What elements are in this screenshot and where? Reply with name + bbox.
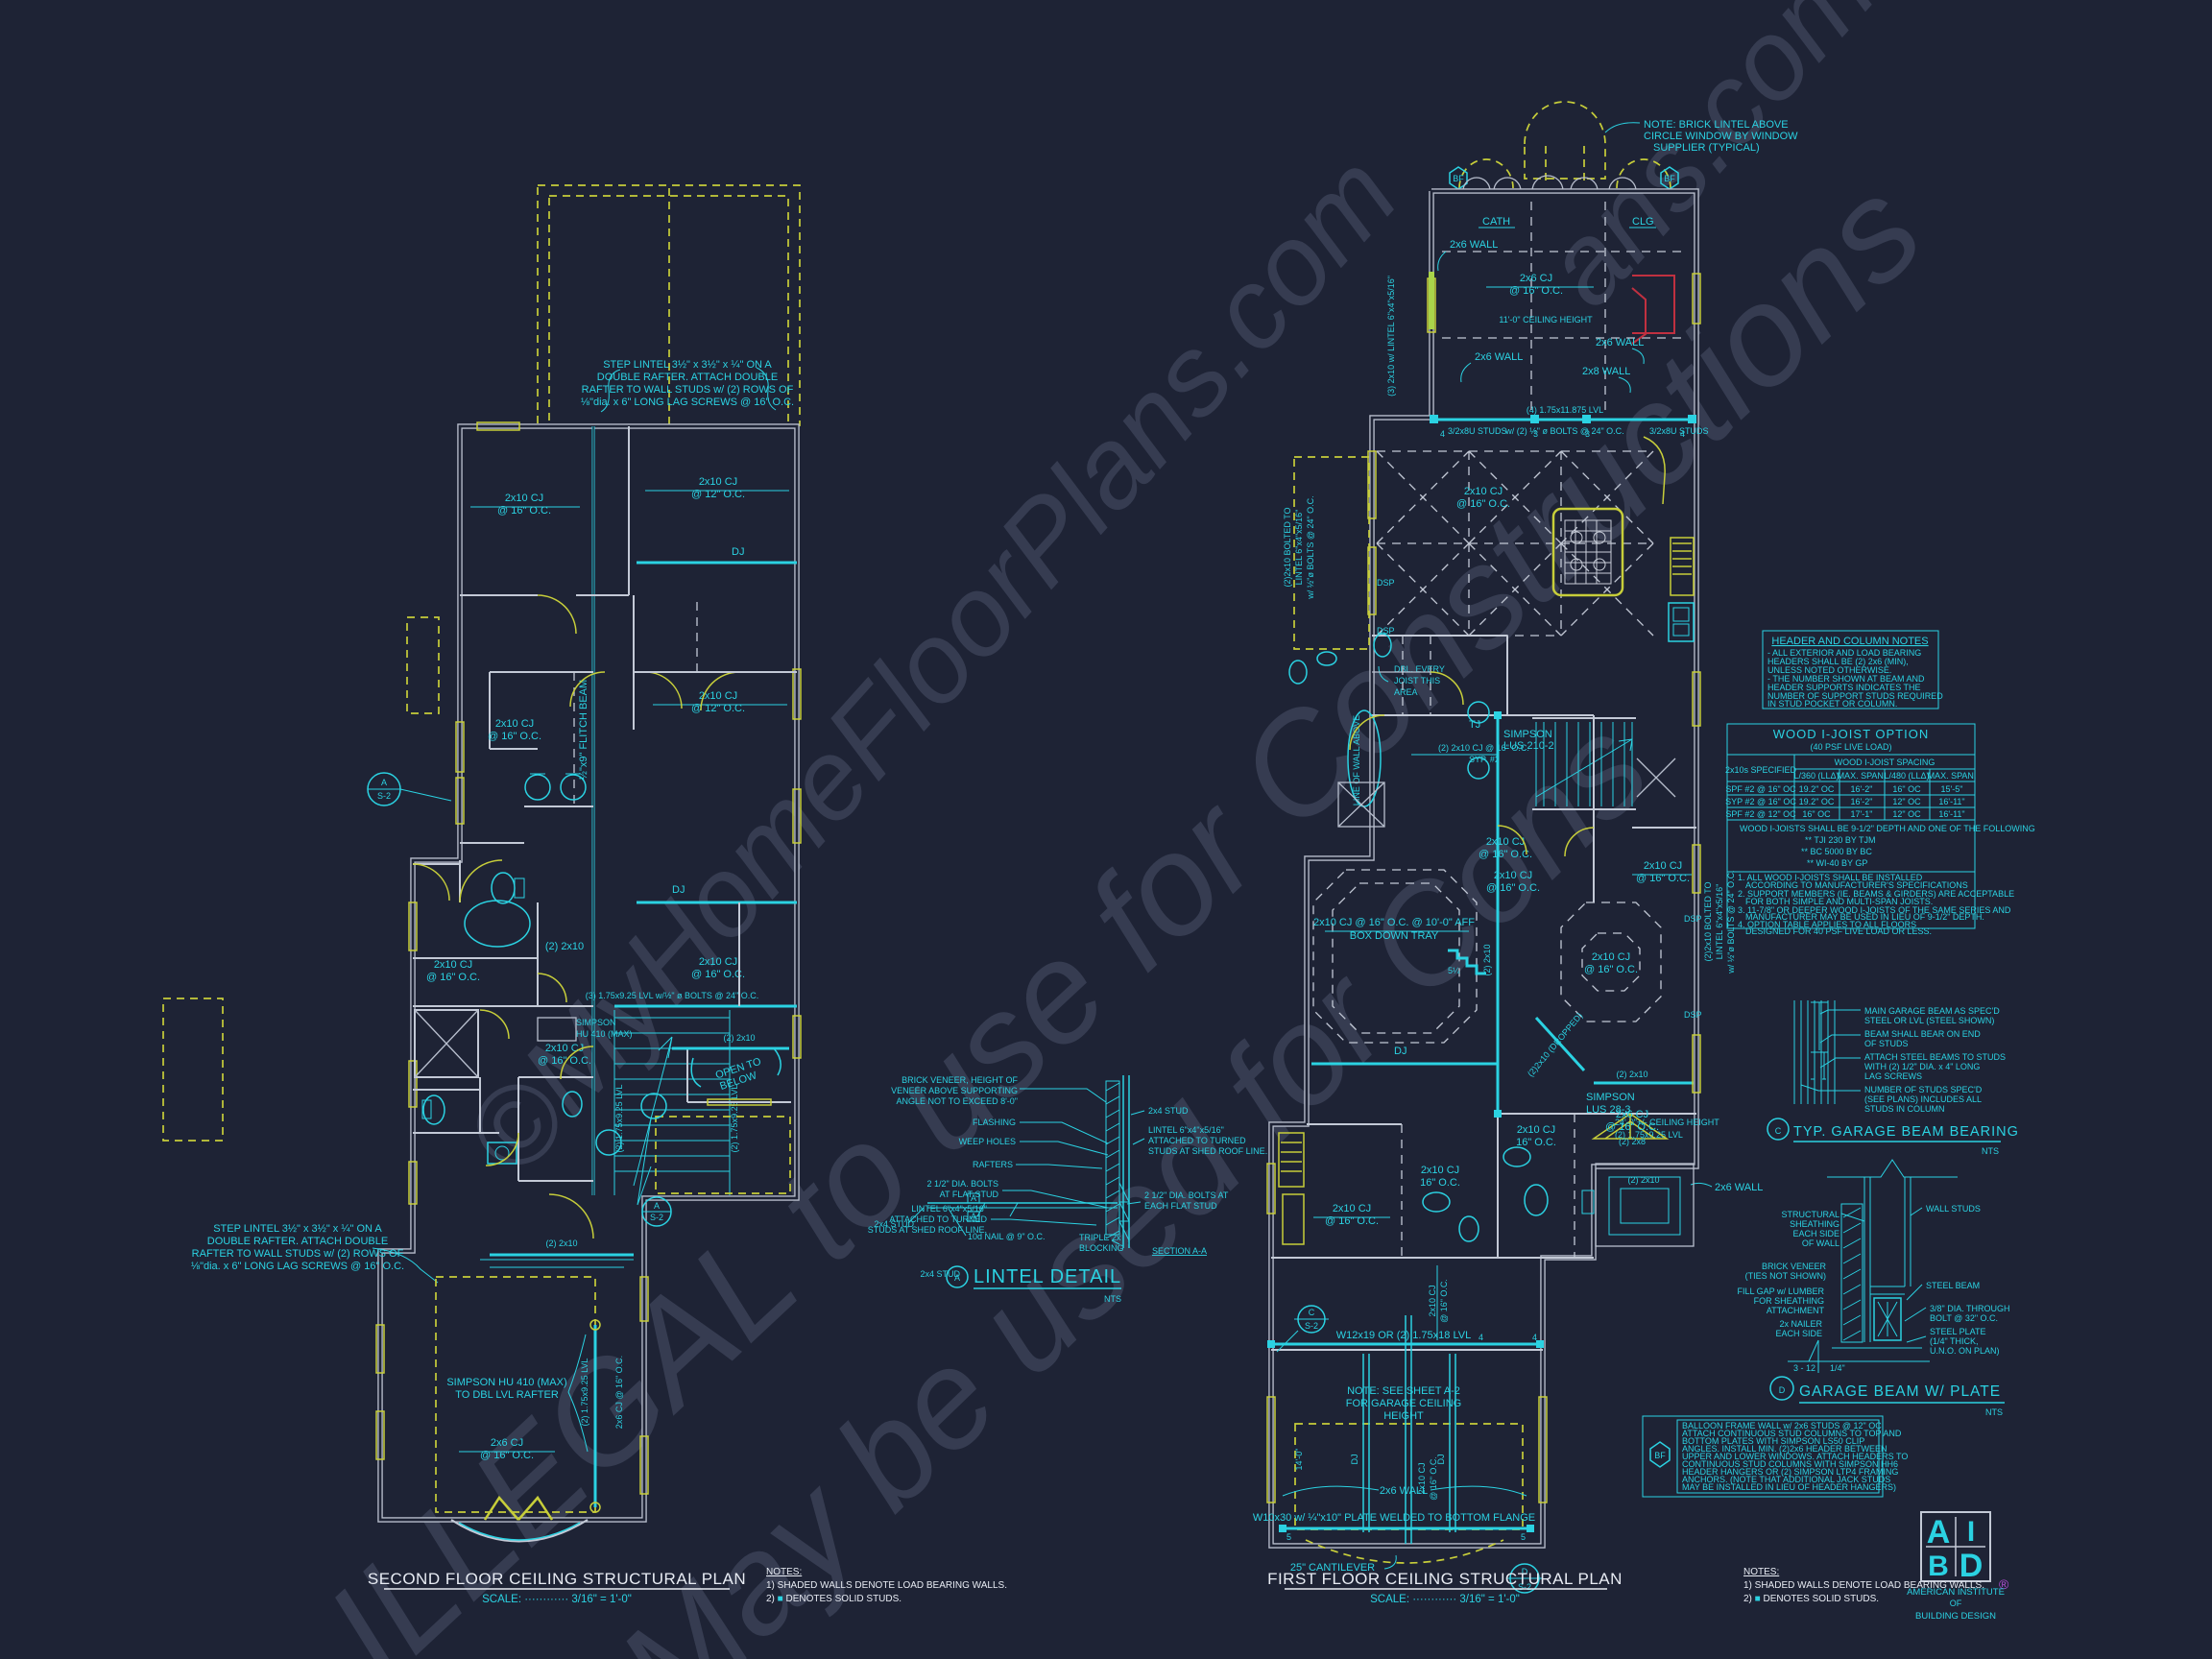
svg-text:2x10 CJ: 2x10 CJ [434,959,472,971]
svg-text:2) ■ DENOTES SOLID STUDS.: 2) ■ DENOTES SOLID STUDS. [1743,1594,1879,1604]
svg-text:16'-11": 16'-11" [1938,797,1964,806]
svg-text:@ 16" O.C.: @ 16" O.C. [1439,1279,1449,1323]
svg-text:WOOD I-JOIST SPACING: WOOD I-JOIST SPACING [1835,757,1935,767]
svg-text:HEIGHT: HEIGHT [1383,1410,1424,1422]
svg-text:4: 4 [1479,1333,1483,1342]
svg-text:GARAGE BEAM W/ PLATE: GARAGE BEAM W/ PLATE [1799,1383,2001,1400]
svg-text:L/360 (LLΔ): L/360 (LLΔ) [1793,771,1839,781]
svg-text:(2) 1.75x9.25 LVL: (2) 1.75x9.25 LVL [580,1358,589,1427]
svg-text:SUPPLIER (TYPICAL): SUPPLIER (TYPICAL) [1653,142,1760,154]
svg-text:11'-0" CEILING HEIGHT: 11'-0" CEILING HEIGHT [1499,315,1593,325]
svg-text:2x10 CJ: 2x10 CJ [1464,486,1503,497]
svg-text:BEAM SHALL BEAR ON END: BEAM SHALL BEAR ON END [1864,1029,1981,1039]
svg-text:NTS: NTS [1104,1294,1121,1304]
svg-text:FLASHING: FLASHING [973,1118,1016,1127]
svg-text:RAFTERS: RAFTERS [973,1160,1013,1169]
svg-text:NTS: NTS [1982,1146,1999,1156]
svg-text:2x10 CJ: 2x10 CJ [1333,1203,1371,1214]
svg-text:2x10 CJ: 2x10 CJ [1428,1285,1437,1316]
svg-text:4: 4 [1680,429,1685,439]
svg-text:W10x30 w/ ¼"x10" PLATE WELDED: W10x30 w/ ¼"x10" PLATE WELDED TO BOTTOM … [1253,1512,1535,1524]
svg-text:10d NAIL @ 9" O.C.: 10d NAIL @ 9" O.C. [968,1232,1046,1241]
svg-text:A: A [971,1212,976,1221]
svg-text:⅛"dia. x 6" LONG LAG SCREWS @: ⅛"dia. x 6" LONG LAG SCREWS @ 16" O.C. [581,397,794,408]
svg-text:(3) 2x10 w/ LINTEL 6"x4"x5/16": (3) 2x10 w/ LINTEL 6"x4"x5/16" [1386,276,1396,397]
svg-text:2x10 CJ: 2x10 CJ [1421,1165,1459,1176]
svg-text:LINTEL 6"x4"x5/16": LINTEL 6"x4"x5/16" [1715,884,1724,960]
svg-text:ATTACH STEEL BEAMS TO STUDS: ATTACH STEEL BEAMS TO STUDS [1864,1052,2006,1062]
svg-text:16'-2": 16'-2" [1851,797,1873,806]
svg-text:L/480 (LLΔ): L/480 (LLΔ) [1884,771,1929,781]
svg-text:NUMBER OF STUDS SPEC'D: NUMBER OF STUDS SPEC'D [1864,1085,1983,1094]
svg-text:15'-5": 15'-5" [1941,784,1963,794]
svg-text:2x10 CJ @ 16" O.C. @ 10'-0" AF: 2x10 CJ @ 16" O.C. @ 10'-0" AFF [1313,917,1475,928]
svg-text:SHEATHING: SHEATHING [1790,1219,1839,1229]
svg-text:3/2x8U STUDS: 3/2x8U STUDS [1448,426,1507,436]
svg-text:TJ: TJ [1469,719,1480,731]
svg-text:NTS: NTS [1985,1407,2003,1417]
svg-text:3/8" DIA. THROUGH: 3/8" DIA. THROUGH [1930,1304,2010,1313]
svg-text:STUDS IN COLUMN: STUDS IN COLUMN [1864,1104,1945,1114]
svg-text:2x6 CJ: 2x6 CJ [1616,1109,1648,1120]
svg-text:2x6 WALL: 2x6 WALL [1380,1485,1428,1497]
svg-text:2x10 CJ: 2x10 CJ [1517,1124,1555,1136]
svg-text:2x10 CJ: 2x10 CJ [699,690,737,702]
svg-text:(2)2x10 BOLTED TO: (2)2x10 BOLTED TO [1703,881,1713,961]
svg-text:2x6 WALL: 2x6 WALL [1596,337,1644,349]
svg-text:2x10 CJ: 2x10 CJ [505,493,543,504]
svg-text:C: C [1775,1126,1782,1136]
svg-text:½"x9" FLITCH BEAM: ½"x9" FLITCH BEAM [578,680,589,780]
svg-text:NOTES:: NOTES: [1743,1567,1779,1577]
svg-text:SPF #2 @ 16" OC: SPF #2 @ 16" OC [1725,784,1796,794]
svg-text:2x6 CJ @ 16" O.C.: 2x6 CJ @ 16" O.C. [614,1356,624,1429]
svg-text:EACH FLAT STUD: EACH FLAT STUD [1144,1201,1217,1211]
svg-text:1) SHADED WALLS DENOTE LOAD BE: 1) SHADED WALLS DENOTE LOAD BEARING WALL… [1743,1580,1984,1591]
svg-text:(SEE PLANS) INCLUDES ALL: (SEE PLANS) INCLUDES ALL [1864,1094,1982,1104]
svg-text:2x4 STUD: 2x4 STUD [874,1219,914,1229]
svg-text:4: 4 [1532,1333,1537,1342]
svg-text:5¼: 5¼ [1448,966,1460,975]
svg-text:2x NAILER: 2x NAILER [1779,1319,1822,1329]
svg-text:2x6 CJ: 2x6 CJ [1520,273,1552,284]
svg-text:@ 16" O.C.: @ 16" O.C. [1479,849,1532,860]
svg-text:@ 16" O.C.: @ 16" O.C. [426,972,480,983]
svg-text:(2) 2x10: (2) 2x10 [545,941,584,952]
svg-text:STEEL BEAM: STEEL BEAM [1926,1281,1980,1290]
svg-text:A: A [971,1193,976,1203]
svg-text:2x6 WALL: 2x6 WALL [1450,239,1498,251]
svg-text:2x6 WALL: 2x6 WALL [1475,351,1523,363]
svg-text:2x10s SPECIFIED: 2x10s SPECIFIED [1725,765,1797,775]
svg-text:FILL GAP w/ LUMBER: FILL GAP w/ LUMBER [1737,1286,1824,1296]
svg-text:TYP. GARAGE BEAM BEARING: TYP. GARAGE BEAM BEARING [1793,1124,2019,1140]
svg-text:(2) 2x8: (2) 2x8 [1619,1137,1646,1146]
svg-text:16" OC: 16" OC [1892,784,1921,794]
svg-text:(2)2x10 BOLTED TO: (2)2x10 BOLTED TO [1283,507,1292,587]
svg-text:RAFTER TO WALL STUDS w/ (2) RO: RAFTER TO WALL STUDS w/ (2) ROWS OF [192,1248,404,1260]
svg-text:LINTEL 6"x4"x5/16": LINTEL 6"x4"x5/16" [1148,1125,1224,1135]
svg-text:ATTACHMENT: ATTACHMENT [1767,1306,1825,1315]
svg-text:@ 16" O.C.: @ 16" O.C. [691,969,745,980]
svg-text:SECOND FLOOR CEILING STRUCTURA: SECOND FLOOR CEILING STRUCTURAL PLAN [368,1570,746,1588]
svg-text:WITH (2) 1/2" DIA. x 4" LONG: WITH (2) 1/2" DIA. x 4" LONG [1864,1062,1980,1071]
svg-text:S-2: S-2 [1305,1321,1318,1331]
svg-text:SCALE: ············ 3/16" =: SCALE: ············ 3/16" = 1'-0" [1370,1594,1520,1605]
svg-text:2) ■ DENOTES SOLID STUDS.: 2) ■ DENOTES SOLID STUDS. [766,1594,902,1604]
svg-text:WOOD I-JOISTS SHALL BE 9-1/2": WOOD I-JOISTS SHALL BE 9-1/2" DEPTH AND … [1740,824,2035,833]
svg-text:CIRCLE WINDOW BY WINDOW: CIRCLE WINDOW BY WINDOW [1644,131,1798,142]
svg-text:CLG: CLG [1632,216,1654,228]
svg-text:2x10 CJ: 2x10 CJ [1592,951,1630,963]
svg-text:SIMPSON: SIMPSON [576,1018,616,1027]
svg-text:ATTACHED TO TURNED: ATTACHED TO TURNED [1148,1136,1246,1145]
svg-text:BOLT @ 32" O.C.: BOLT @ 32" O.C. [1930,1313,1998,1323]
svg-text:FOR GARAGE CEILING: FOR GARAGE CEILING [1346,1398,1461,1409]
svg-text:FIRST FLOOR CEILING STRUCTURAL: FIRST FLOOR CEILING STRUCTURAL PLAN [1267,1570,1623,1588]
svg-text:w/ ½"ø BOLTS @ 24" O.C.: w/ ½"ø BOLTS @ 24" O.C. [1306,495,1315,599]
svg-text:DJ: DJ [1350,1455,1359,1465]
svg-text:1/4": 1/4" [1830,1363,1845,1373]
svg-text:I: I [1967,1516,1975,1548]
svg-text:DOUBLE RAFTER. ATTACH DOUBLE: DOUBLE RAFTER. ATTACH DOUBLE [207,1236,388,1247]
svg-text:AT FLAT STUD: AT FLAT STUD [940,1190,999,1199]
svg-text:MAX. SPAN.: MAX. SPAN. [1928,771,1977,781]
svg-text:SIMPSON HU 410 (MAX): SIMPSON HU 410 (MAX) [446,1377,566,1388]
svg-text:3/2x8U STUDS: 3/2x8U STUDS [1649,426,1709,436]
svg-text:(2) 2x10: (2) 2x10 [723,1033,755,1043]
svg-text:3 - 12: 3 - 12 [1793,1363,1815,1373]
svg-text:NOTE: BRICK LINTEL ABOVE: NOTE: BRICK LINTEL ABOVE [1644,119,1789,131]
svg-text:SCALE: ············ 3/16" =: SCALE: ············ 3/16" = 1'-0" [482,1594,632,1605]
svg-text:2x10 CJ: 2x10 CJ [1494,870,1532,881]
svg-text:(1/4" THICK,: (1/4" THICK, [1930,1336,1979,1346]
svg-text:@ 16" O.C.: @ 16" O.C. [1456,498,1510,510]
svg-text:STEP LINTEL 3½" x 3½" x ¼" ON: STEP LINTEL 3½" x 3½" x ¼" ON A [213,1223,382,1235]
svg-text:BRICK VENEER: BRICK VENEER [1762,1262,1827,1271]
svg-text:(TIES NOT SHOWN): (TIES NOT SHOWN) [1745,1271,1826,1281]
svg-text:@ 16" O.C.: @ 16" O.C. [1486,882,1540,894]
svg-text:SIMPSON: SIMPSON [1503,729,1552,740]
svg-text:LINTEL DETAIL: LINTEL DETAIL [974,1266,1121,1287]
svg-text:** TJI 230 BY TJM: ** TJI 230 BY TJM [1805,835,1876,845]
svg-text:** BC 5000 BY BC: ** BC 5000 BY BC [1801,847,1872,856]
svg-text:VENEER ABOVE SUPPORTING: VENEER ABOVE SUPPORTING [891,1086,1018,1095]
svg-text:(2) 1.75x9.25 LVL: (2) 1.75x9.25 LVL [614,1085,624,1153]
svg-text:2x10 CJ: 2x10 CJ [545,1043,584,1054]
svg-text:D: D [1779,1385,1786,1395]
svg-text:@ 16" O.C.: @ 16" O.C. [1429,1456,1438,1501]
svg-text:JOIST THIS: JOIST THIS [1394,676,1440,685]
svg-text:LAG SCREWS: LAG SCREWS [1864,1071,1922,1081]
svg-text:16" O.C.: 16" O.C. [1420,1177,1460,1189]
svg-text:16'-11": 16'-11" [1938,809,1964,819]
svg-text:AREA: AREA [1394,687,1418,697]
svg-text:(2) 2x10: (2) 2x10 [1627,1175,1659,1185]
svg-text:A: A [381,778,387,787]
svg-text:OF: OF [1950,1599,1962,1608]
svg-text:HU 410 (MAX): HU 410 (MAX) [576,1029,633,1039]
svg-text:NOTE: SEE SHEET A-2: NOTE: SEE SHEET A-2 [1347,1385,1460,1397]
svg-text:STRUCTURAL: STRUCTURAL [1781,1210,1839,1219]
svg-text:WEEP HOLES: WEEP HOLES [959,1137,1016,1146]
svg-text:STEP LINTEL 3½" x 3½" x ¼" ON: STEP LINTEL 3½" x 3½" x ¼" ON A [603,359,772,371]
svg-text:w/ (2) ½" ø BOLTS @ 24" O.C.: w/ (2) ½" ø BOLTS @ 24" O.C. [1504,426,1623,436]
svg-text:SECTION A-A: SECTION A-A [1152,1246,1207,1256]
svg-text:@ 16" O.C.: @ 16" O.C. [1584,964,1638,975]
svg-text:A: A [1927,1514,1951,1551]
svg-text:1) SHADED WALLS DENOTE LOAD BE: 1) SHADED WALLS DENOTE LOAD BEARING WALL… [766,1580,1007,1591]
svg-text:WALL STUDS: WALL STUDS [1926,1204,1981,1214]
svg-text:2 1/2" DIA. BOLTS: 2 1/2" DIA. BOLTS [926,1179,998,1189]
svg-text:19.2" OC: 19.2" OC [1799,797,1835,806]
svg-text:MAX. SPAN.: MAX. SPAN. [1838,771,1887,781]
svg-text:3: 3 [1533,429,1538,439]
svg-text:DSP: DSP [1684,914,1702,924]
svg-text:(2) 2x10: (2) 2x10 [1482,944,1492,975]
svg-text:5: 5 [1286,1532,1291,1542]
svg-text:2x10 CJ: 2x10 CJ [699,956,737,968]
svg-text:RAFTER TO WALL STUDS w/ (2) RO: RAFTER TO WALL STUDS w/ (2) ROWS OF [582,384,794,396]
svg-text:BF: BF [1453,174,1464,183]
svg-text:(3) 1.75x9.25 LVL w/½" ø BOLTS: (3) 1.75x9.25 LVL w/½" ø BOLTS @ 24" O.C… [586,991,758,1000]
svg-text:OF WALL: OF WALL [1802,1238,1839,1248]
svg-text:IN STUD POCKET OR COLUMN.: IN STUD POCKET OR COLUMN. [1767,699,1897,709]
svg-text:14'-0": 14'-0" [1294,1449,1304,1471]
svg-text:BOX DOWN TRAY: BOX DOWN TRAY [1350,930,1439,942]
svg-text:(40 PSF LIVE LOAD): (40 PSF LIVE LOAD) [1810,742,1891,752]
svg-text:@ 16" O.C.: @ 16" O.C. [1605,1121,1659,1133]
svg-text:(2) 2x10: (2) 2x10 [1616,1070,1647,1079]
svg-text:DSP: DSP [1684,1010,1702,1020]
svg-text:** WI-40 BY GP: ** WI-40 BY GP [1807,858,1867,868]
svg-text:D: D [1960,1548,1984,1584]
svg-text:DJ: DJ [732,546,744,558]
svg-text:DJ: DJ [1394,1046,1407,1057]
svg-text:WOOD I-JOIST OPTION: WOOD I-JOIST OPTION [1773,727,1929,741]
svg-text:DSP: DSP [1377,578,1395,588]
svg-text:16" O.C.: 16" O.C. [1516,1137,1556,1148]
svg-text:FOR SHEATHING: FOR SHEATHING [1754,1296,1824,1306]
svg-text:2x10 CJ: 2x10 CJ [1644,860,1682,872]
svg-text:17'-1": 17'-1" [1851,809,1873,819]
svg-text:4: 4 [1440,429,1445,439]
svg-text:@ 16" O.C.: @ 16" O.C. [488,731,541,742]
svg-text:2x8 WALL: 2x8 WALL [1582,366,1630,377]
svg-text:3: 3 [1585,429,1590,439]
svg-text:TRIPLE 2x: TRIPLE 2x [1079,1233,1121,1242]
svg-text:16" OC: 16" OC [1802,809,1831,819]
svg-text:2x10 CJ: 2x10 CJ [699,476,737,488]
svg-text:2x4 STUD: 2x4 STUD [1148,1106,1189,1116]
svg-text:(4) 1.75x11.875 LVL: (4) 1.75x11.875 LVL [1527,405,1603,415]
svg-text:A: A [954,1273,960,1283]
svg-text:TO DBL LVL RAFTER: TO DBL LVL RAFTER [455,1389,559,1401]
svg-text:DOUBLE RAFTER. ATTACH DOUBLE: DOUBLE RAFTER. ATTACH DOUBLE [597,372,778,383]
svg-text:BF: BF [1664,174,1675,183]
svg-text:BF: BF [1654,1451,1666,1460]
svg-text:CATH: CATH [1482,216,1510,228]
svg-text:SYP #2 @ 16" OC: SYP #2 @ 16" OC [1725,797,1796,806]
svg-text:A: A [654,1201,660,1211]
svg-text:S-2: S-2 [377,791,391,801]
svg-text:2x6 CJ: 2x6 CJ [491,1437,523,1449]
svg-text:⅛"dia. x 6" LONG LAG SCREWS @: ⅛"dia. x 6" LONG LAG SCREWS @ 16" O.C. [191,1261,404,1272]
svg-text:(2) 1.75x9.25 LVL: (2) 1.75x9.25 LVL [730,1085,739,1153]
svg-text:STEEL OR LVL (STEEL SHOWN): STEEL OR LVL (STEEL SHOWN) [1864,1016,1994,1025]
svg-text:C: C [1309,1308,1315,1317]
svg-text:2x6 WALL: 2x6 WALL [1715,1182,1763,1193]
svg-text:LINTEL 6"x4"x5/16": LINTEL 6"x4"x5/16" [1294,510,1304,586]
svg-text:STUDS AT SHED ROOF LINE.: STUDS AT SHED ROOF LINE. [1148,1146,1267,1156]
svg-text:BRICK VENEER, HEIGHT OF: BRICK VENEER, HEIGHT OF [902,1075,1018,1085]
svg-text:STEEL PLATE: STEEL PLATE [1930,1327,1986,1336]
svg-text:(2) 2x10: (2) 2x10 [545,1238,577,1248]
svg-text:12" OC: 12" OC [1892,797,1921,806]
svg-text:12" OC: 12" OC [1892,809,1921,819]
svg-text:2x10 CJ: 2x10 CJ [1486,836,1525,848]
svg-text:2 1/2" DIA. BOLTS AT: 2 1/2" DIA. BOLTS AT [1144,1190,1229,1200]
svg-text:MAIN GARAGE BEAM AS SPEC'D: MAIN GARAGE BEAM AS SPEC'D [1864,1006,2000,1016]
svg-text:HEADER AND COLUMN NOTES: HEADER AND COLUMN NOTES [1771,636,1928,647]
svg-text:B: B [1928,1551,1949,1582]
svg-text:NOTES:: NOTES: [766,1567,802,1577]
svg-text:16'-2": 16'-2" [1851,784,1873,794]
svg-text:EACH SIDE: EACH SIDE [1775,1329,1822,1338]
svg-text:19.2" OC: 19.2" OC [1799,784,1835,794]
svg-text:SIMPSON: SIMPSON [1586,1092,1635,1103]
svg-text:S-2: S-2 [650,1213,663,1222]
svg-text:OF STUDS: OF STUDS [1864,1039,1909,1048]
svg-text:5: 5 [1521,1532,1526,1542]
svg-text:U.N.O. ON PLAN): U.N.O. ON PLAN) [1930,1346,2000,1356]
svg-text:DESIGNED FOR 40 PSF LIVE LOAD: DESIGNED FOR 40 PSF LIVE LOAD OR LESS. [1745,926,1932,936]
svg-text:W12x19 OR (2) 1.75x18 LVL: W12x19 OR (2) 1.75x18 LVL [1336,1330,1471,1341]
svg-text:BUILDING DESIGN: BUILDING DESIGN [1915,1611,1996,1622]
svg-text:MAY BE INSTALLED IN LIEU OF HE: MAY BE INSTALLED IN LIEU OF HEADER HANGE… [1682,1482,1896,1492]
svg-text:SPF #2 @ 12" OC: SPF #2 @ 12" OC [1725,809,1796,819]
svg-text:LUS 210-2: LUS 210-2 [1503,740,1554,752]
svg-text:DJ: DJ [672,884,685,896]
svg-text:ANGLE NOT TO EXCEED 8'-0": ANGLE NOT TO EXCEED 8'-0" [897,1096,1018,1106]
svg-text:2x10 CJ: 2x10 CJ [495,718,534,730]
svg-text:EACH SIDE: EACH SIDE [1792,1229,1839,1238]
svg-text:BLOCKING: BLOCKING [1079,1243,1124,1253]
